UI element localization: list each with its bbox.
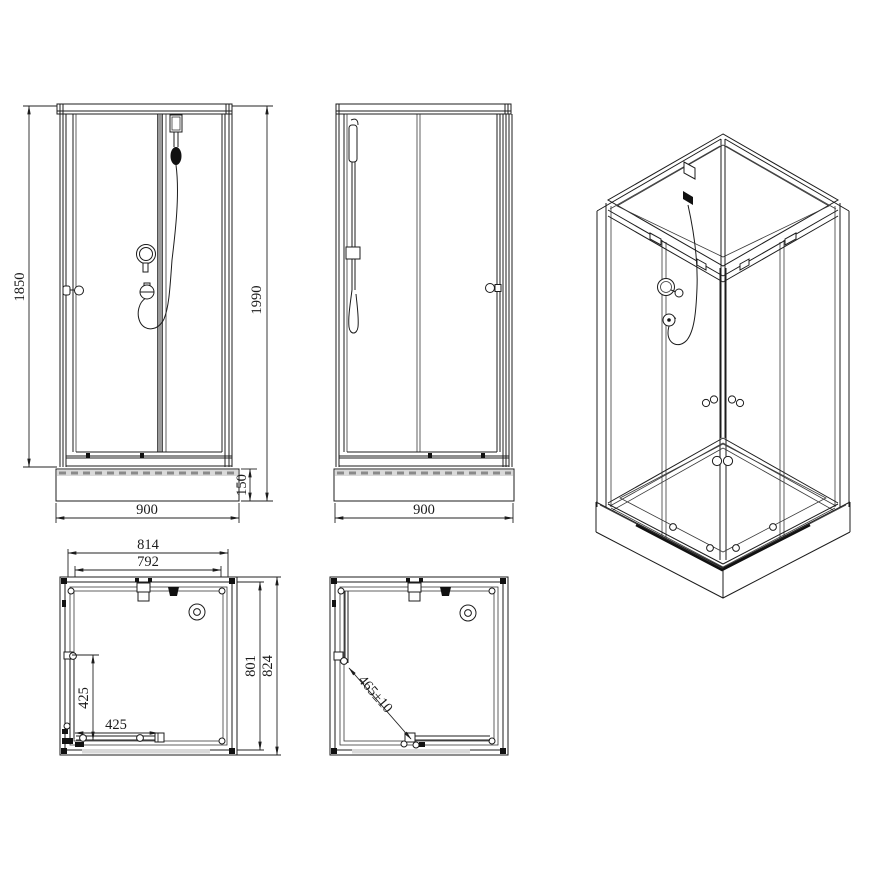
dim-side-width-text: 900	[413, 502, 435, 518]
dimension-front-total-height: 1990	[232, 106, 273, 501]
plan1-top-bracket	[135, 578, 179, 601]
front-door-divider	[158, 114, 167, 452]
dim-plan-outer-width-text: 814	[137, 537, 160, 553]
dim-front-tray-height-text: 150	[234, 474, 250, 496]
iso-mixer-valve	[658, 279, 684, 298]
side-view: 900	[334, 104, 514, 523]
dimension-side-width: 900	[335, 502, 513, 523]
dim-plan-outer-depth-text: 824	[260, 654, 276, 677]
iso-water-outlet	[663, 314, 675, 326]
dim-plan-door-left-text: 425	[76, 687, 92, 709]
side-bottom-rail	[339, 452, 509, 466]
iso-roof	[597, 134, 849, 266]
iso-door-guide	[712, 456, 732, 465]
iso-tray	[596, 502, 850, 598]
dimension-front-width: 900	[56, 502, 239, 523]
dim-front-total-height-text: 1990	[249, 286, 265, 315]
plan2-top-bracket	[406, 578, 451, 601]
plan1-corner-fittings	[61, 578, 235, 754]
side-top-frame	[336, 104, 511, 114]
plan2-drain	[460, 605, 476, 621]
plan1-door-panels	[62, 600, 210, 754]
dim-plan-inner-depth-text: 801	[243, 655, 259, 677]
dimension-plan-open-diagonal: 465±10	[349, 668, 411, 739]
iso-shower-head	[683, 162, 695, 205]
front-top-frame	[57, 104, 232, 114]
shower-cabin-drawing: 1850 1990 150 900	[0, 0, 870, 870]
dimension-plan-door-left: 425	[72, 655, 99, 740]
side-left-frame	[336, 114, 347, 467]
iso-posts	[597, 139, 849, 560]
plan1-drain	[189, 604, 205, 620]
plan-view-door-open: 465±10	[330, 577, 508, 755]
side-door-handle	[486, 284, 502, 293]
dimension-front-glass-height: 1850	[12, 106, 57, 467]
side-door-divider	[417, 114, 420, 452]
isometric-view	[596, 134, 850, 598]
dim-plan-inner-width-text: 792	[137, 554, 159, 570]
front-right-frame	[222, 114, 232, 467]
mixer-valve	[137, 245, 156, 273]
dimension-plan-inner-width: 792	[75, 554, 221, 577]
iso-bottom-tracks	[608, 438, 838, 567]
technical-drawing-canvas: 1850 1990 150 900	[0, 0, 870, 870]
dim-plan-door-bottom-text: 425	[105, 717, 127, 733]
side-tray	[334, 469, 514, 501]
water-outlet	[140, 283, 154, 299]
front-bottom-rail	[66, 452, 232, 466]
shower-head	[170, 115, 182, 165]
dim-front-width-text: 900	[136, 502, 158, 518]
plan-view-door-closed: 814 792 801 824 425 425	[60, 537, 281, 755]
plan2-corner-fittings	[331, 578, 506, 754]
front-view: 1850 1990 150 900	[12, 104, 273, 523]
dim-front-glass-height-text: 1850	[12, 273, 28, 302]
iso-top-frame	[608, 210, 838, 282]
front-tray	[56, 469, 239, 501]
dim-plan-open-diagonal-text: 465±10	[354, 672, 395, 716]
dimension-plan-door-bottom: 425	[75, 717, 158, 742]
shower-rail-column	[346, 119, 360, 333]
iso-door-knobs	[702, 396, 743, 407]
